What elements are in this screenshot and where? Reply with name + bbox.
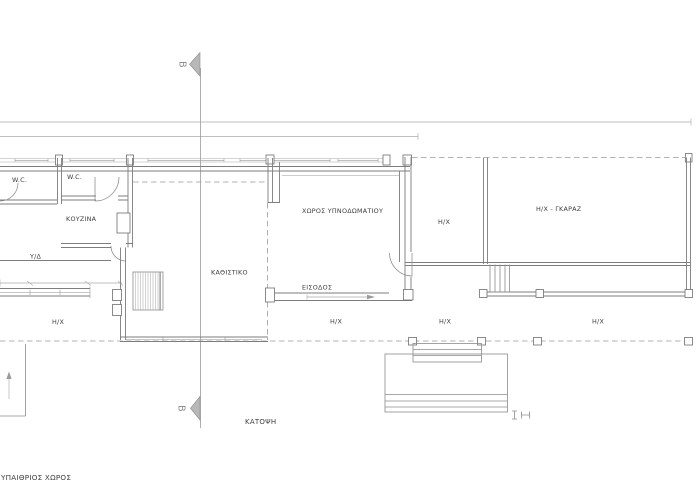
ramp-arrow	[6, 372, 11, 380]
room-labels: W.C. W.C. ΚΟΥΖΙΝΑ Υ/Δ ΧΩΡΟΣ ΥΠΝΟΔΩΜΑΤΙΟΥ…	[12, 173, 604, 326]
paving-symbol-h	[522, 412, 530, 419]
label-entrance: ΕΙΣΟΔΟΣ	[302, 284, 332, 292]
column-marker	[403, 155, 412, 165]
section-label-bottom: B	[176, 405, 187, 412]
site-area-label: ΥΠΑΙΘΡΙΟΣ ΧΩΡΟΣ	[0, 473, 71, 482]
label-living: ΚΑΘΙΣΤΙΚΟ	[211, 269, 248, 277]
label-bedroom-closet: Υ/Δ	[29, 253, 42, 261]
label-hx-middle: Η/Χ	[438, 218, 450, 226]
driveway-ramp	[0, 344, 26, 416]
label-garage: Η/Χ - ΓΚΑΡΑΖ	[536, 205, 582, 213]
column-marker	[480, 290, 488, 298]
section-line-b: B B	[176, 53, 201, 429]
wc2-door-arc	[95, 177, 119, 201]
column-marker	[534, 338, 542, 346]
dashed-boundaries	[0, 158, 692, 342]
column-marker	[685, 338, 693, 346]
label-wc1: W.C.	[12, 176, 27, 184]
kitchen-fixture	[117, 213, 130, 233]
garage-stair	[490, 265, 510, 293]
floor-plan-canvas: B B	[0, 0, 700, 500]
entrance-door-arc	[390, 253, 413, 276]
label-kitchen: ΚΟΥΖΙΝΑ	[66, 215, 97, 223]
column-marker	[685, 290, 693, 298]
column-marker	[266, 288, 275, 302]
kitchen-door-arc	[111, 246, 126, 261]
label-hx-right1: Η/Χ	[439, 318, 451, 326]
door-jamb	[113, 290, 122, 301]
drawing-title: ΚΑΤΟΨΗ	[245, 418, 276, 426]
column-marker	[536, 290, 544, 298]
section-label-top: B	[177, 61, 188, 68]
walkway-arrow	[367, 295, 375, 300]
column-marker	[404, 290, 414, 301]
label-hx-center: Η/Χ	[330, 318, 342, 326]
section-marker-bottom-triangle	[191, 397, 201, 421]
floor-plan-drawing: B B	[0, 0, 700, 500]
wc1-door-arc	[0, 183, 18, 201]
column-marker	[383, 155, 390, 165]
label-hx-right2: Η/Χ	[592, 318, 604, 326]
exterior-steps	[385, 338, 693, 420]
titles: ΚΑΤΟΨΗ ΥΠΑΙΘΡΙΟΣ ΧΩΡΟΣ	[0, 418, 276, 482]
north-wall	[0, 154, 692, 172]
interior-stair	[133, 272, 163, 310]
section-marker-top-triangle	[190, 53, 201, 77]
paving-symbol-i	[512, 411, 517, 419]
dimension-lines	[0, 119, 691, 287]
label-hx-left: Η/Χ	[52, 318, 64, 326]
label-wc2: W.C.	[67, 173, 82, 181]
walls	[0, 157, 693, 342]
label-bedroom-area: ΧΩΡΟΣ ΥΠΝΟΔΩΜΑΤΙΟΥ	[302, 207, 383, 215]
door-jamb	[113, 305, 122, 316]
